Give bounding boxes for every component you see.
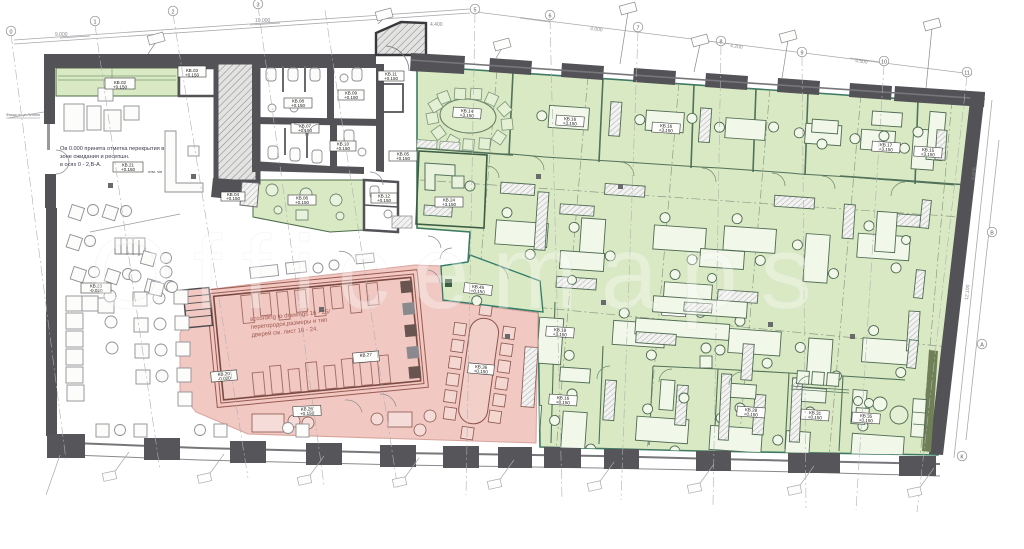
svg-text:+0.150: +0.150 (113, 85, 128, 90)
svg-text:+0.150: +0.150 (384, 76, 399, 81)
svg-text:В: В (990, 231, 994, 237)
svg-text:+0.150: +0.150 (396, 156, 411, 161)
svg-text:+0.150: +0.150 (377, 198, 392, 203)
svg-text:+3.150: +3.150 (442, 202, 457, 207)
svg-text:+0.150: +0.150 (121, 167, 136, 172)
svg-text:+3.150: +3.150 (563, 121, 578, 127)
svg-text:+0.150: +0.150 (556, 400, 571, 406)
svg-text:11: 11 (964, 71, 970, 77)
svg-text:5: 5 (474, 8, 477, 14)
svg-text:4.400: 4.400 (430, 22, 443, 28)
svg-text:А: А (980, 343, 984, 349)
svg-text:7: 7 (637, 26, 640, 32)
svg-text:+0.150: +0.150 (744, 412, 759, 418)
svg-text:6: 6 (549, 14, 552, 20)
svg-text:+3.150: +3.150 (879, 147, 894, 153)
svg-text:+0.150: +0.150 (295, 200, 310, 205)
svg-text:9: 9 (801, 51, 804, 57)
svg-text:+3.150: +3.150 (553, 332, 568, 338)
svg-text:0: 0 (10, 30, 13, 36)
svg-text:Ов 0.000 принята отметка перек: Ов 0.000 принята отметка перекрытия в (60, 146, 164, 152)
svg-text:зоне ожидания и ресепшн.: зоне ожидания и ресепшн. (60, 154, 130, 160)
svg-text:+0.150: +0.150 (808, 415, 823, 421)
svg-text:+3.150: +3.150 (460, 113, 475, 119)
svg-text:+0.150: +0.150 (226, 196, 241, 201)
svg-text:10: 10 (881, 60, 887, 66)
svg-text:2: 2 (172, 10, 175, 16)
svg-text:Officemaps: Officemaps (90, 215, 834, 331)
svg-text:+0.150: +0.150 (185, 73, 200, 78)
svg-text:+0.150: +0.150 (300, 411, 315, 417)
svg-text:+0.150: +0.150 (336, 146, 351, 151)
svg-text:+0.150: +0.150 (859, 418, 874, 424)
svg-text:+3.150: +3.150 (659, 128, 674, 134)
svg-text:+0.150: +0.150 (344, 95, 359, 100)
svg-text:3: 3 (257, 3, 260, 9)
svg-text:+0.150: +0.150 (291, 103, 306, 108)
svg-text:9.000: 9.000 (55, 32, 68, 38)
svg-text:в осях 0 - 2,В-А.: в осях 0 - 2,В-А. (60, 162, 102, 168)
svg-text:отм. ч/п: отм. ч/п (148, 169, 162, 174)
svg-text:1: 1 (94, 20, 97, 26)
svg-text:+3.150: +3.150 (921, 152, 936, 158)
svg-text:10.000: 10.000 (255, 18, 271, 24)
